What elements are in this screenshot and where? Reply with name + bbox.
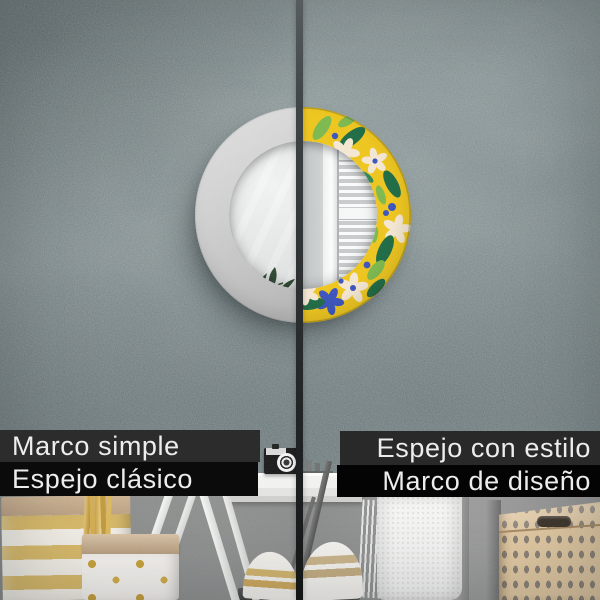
round-mirror [195, 107, 411, 323]
shutter-top-rail [339, 151, 377, 160]
caption-text: Marco de diseño [382, 466, 591, 497]
camera-lens [277, 453, 296, 472]
caption-left-bottom: Espejo clásico [0, 462, 258, 496]
vintage-camera [264, 448, 300, 474]
white-towel [377, 497, 462, 600]
basket-handle [537, 516, 571, 527]
basket-shadow [486, 500, 501, 600]
caption-text: Espejo clásico [12, 464, 193, 495]
caption-right-bottom: Marco de diseño [337, 465, 600, 497]
divider-line [296, 0, 303, 600]
shutter-mid-rail [339, 208, 377, 219]
bag-rim [82, 534, 179, 556]
camera-knob [272, 444, 279, 449]
caption-right-top: Espejo con estilo [340, 431, 600, 465]
pillow-stripes [243, 568, 300, 594]
paper-bag-polka-dot [82, 534, 179, 600]
caption-text: Marco simple [12, 431, 180, 462]
pillow-stripes [299, 554, 362, 581]
window-stile [323, 141, 337, 289]
plant-reflection [245, 265, 299, 289]
window-reflection [303, 141, 377, 289]
storage-basket [499, 502, 600, 600]
shelf-tray [303, 471, 333, 473]
mirror-glass [229, 141, 377, 289]
caption-text: Espejo con estilo [377, 433, 591, 464]
bag-body [82, 554, 179, 600]
window-wall-reflection [303, 141, 323, 289]
product-photo: Marco simple Espejo clásico Espejo con e… [0, 0, 600, 600]
caption-left-top: Marco simple [0, 430, 260, 462]
